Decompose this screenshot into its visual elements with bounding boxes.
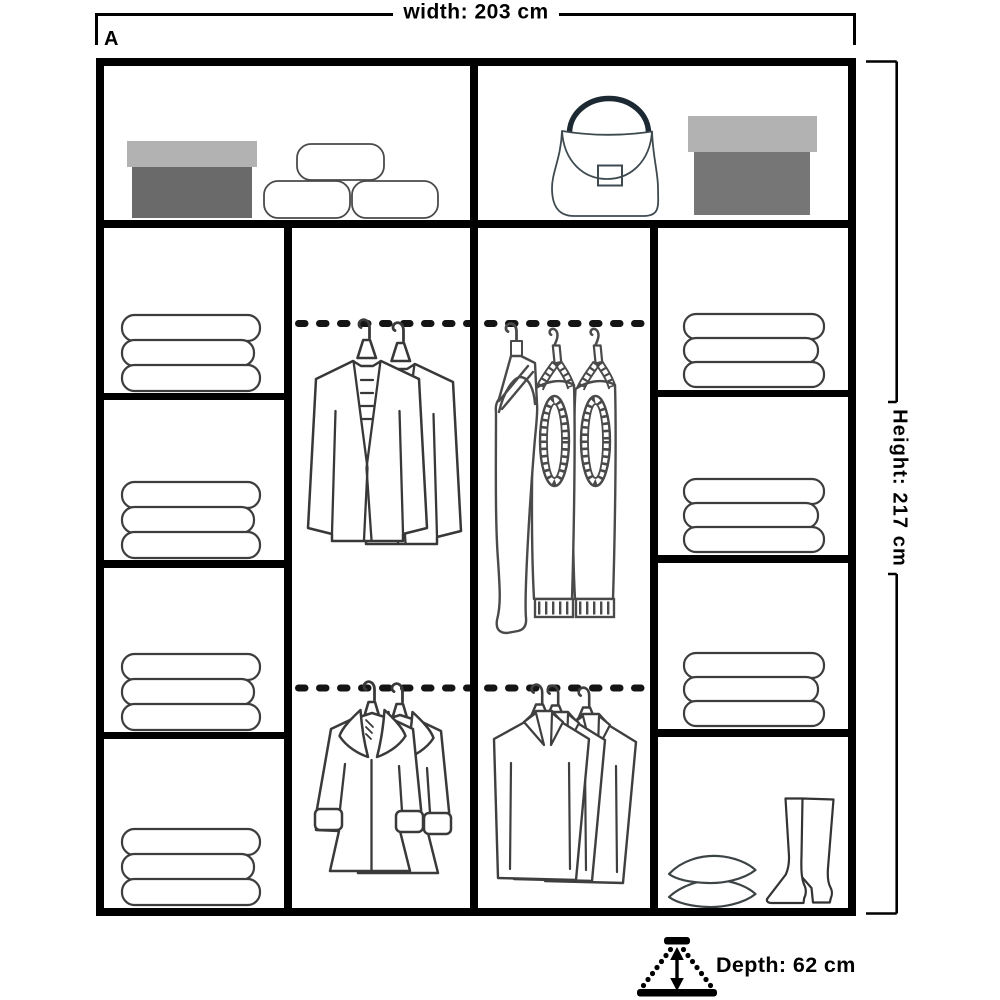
svg-text:A: A: [104, 28, 118, 50]
svg-text:Height: 217 cm: Height: 217 cm: [889, 409, 911, 567]
svg-text:width: 203 cm: width: 203 cm: [402, 0, 548, 23]
svg-text:Depth: 62 cm: Depth: 62 cm: [716, 953, 856, 977]
